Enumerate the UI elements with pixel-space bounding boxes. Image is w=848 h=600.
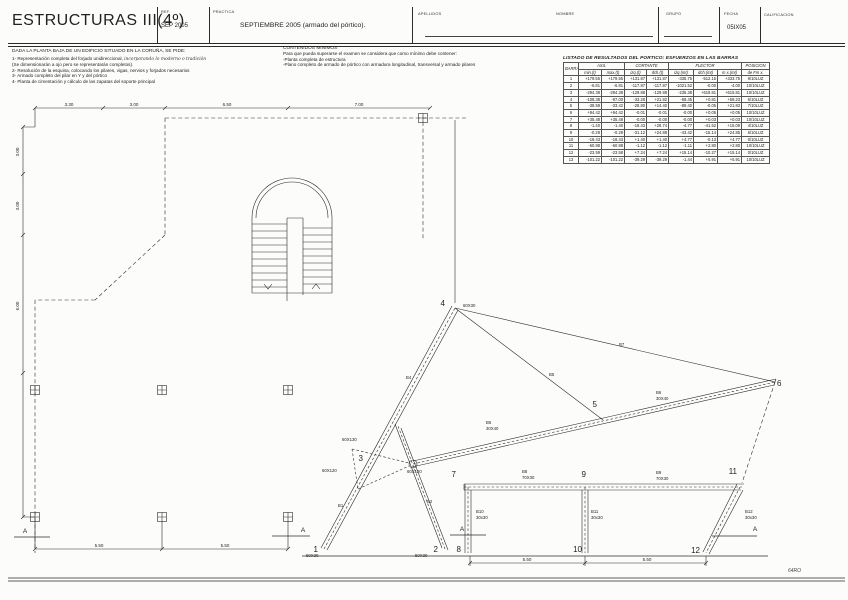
stair-arrow-down-icon [264,284,272,289]
bar-b2-label: B2 [427,499,433,504]
corner-stamp: 64RO [788,568,801,574]
node-5: 5 [593,400,598,409]
bar-b10-section: 30x30 [476,515,488,520]
section-marker-a: A [460,526,465,533]
node-6: 6 [777,379,782,388]
bar-b11-label: B11 [591,509,599,514]
dim-top-2: 3.00 [130,102,139,107]
page-bottom-border [8,578,845,581]
node-7: 7 [452,470,457,479]
section-marker-a: A [301,527,306,534]
bar-b10-label: B10 [476,509,484,514]
bar-b6-label: B6 [656,390,662,395]
floor-plan: 3.30 3.00 6.50 7.00 3.00 3.00 6.00 5.50 … [14,102,468,553]
dim-left-3: 6.00 [15,301,20,310]
bar-b8-label: B8 [522,469,528,474]
bar-b8-section: 70X30 [522,475,535,480]
bar-b6-section: 30X40 [656,396,669,401]
node-3: 3 [359,454,364,463]
frame-dim-1: 5.50 [523,557,532,562]
section-marker-a: A [23,528,28,535]
node-11: 11 [729,467,738,476]
bar-b6-label: B6 [486,420,492,425]
dim-left-2: 3.00 [15,201,20,210]
bar-b9-label: B9 [656,470,662,475]
technical-drawing: 3.30 3.00 6.50 7.00 3.00 3.00 6.00 5.50 … [0,0,848,600]
section-node-3c: 60X120 [407,469,422,474]
node-4: 4 [441,299,446,308]
dim-left-1: 3.00 [15,147,20,156]
node-2: 2 [434,545,439,554]
bar-b9-section: 70X30 [656,476,669,481]
staircase [252,178,332,301]
dim-top-1: 3.30 [65,102,74,107]
column-symbols [31,114,428,522]
node-8: 8 [457,545,462,554]
bar-b1-label: B1 [338,503,344,508]
section-base-1: 50X30 [306,553,319,558]
scanned-exam-sheet: ESTRUCTURAS III(4º) REF. SEP 2005 PRACTI… [0,0,848,600]
section-node-3b: 60X120 [322,468,337,473]
portico-frame: 1 2 3 4 5 6 7 8 9 10 11 12 B1 B2 B4 B5 B… [302,299,782,566]
section-marker-a: A [753,526,758,533]
section-node-4: 60X30 [463,303,476,308]
dim-bottom-2: 5.50 [221,543,230,548]
dim-top-3: 6.50 [223,102,232,107]
section-node-3a: 60X130 [342,437,357,442]
bar-b11-section: 30x30 [591,515,603,520]
bar-b7-label: B7 [619,342,625,347]
frame-dim-2: 5.50 [643,557,652,562]
bar-b12-label: B12 [745,509,753,514]
dim-bottom-1: 5.50 [95,543,104,548]
bar-b5-label: B5 [549,372,555,377]
section-base-2: 50X30 [415,553,428,558]
bar-b6-section: 30X40 [486,426,499,431]
node-12: 12 [691,546,700,555]
node-9: 9 [582,470,587,479]
node-10: 10 [573,545,582,554]
stair-arrow-up-icon [312,284,320,289]
bar-b12-section: 30x30 [745,515,757,520]
dim-top-4: 7.00 [355,102,364,107]
bar-b4-label: B4 [406,375,412,380]
